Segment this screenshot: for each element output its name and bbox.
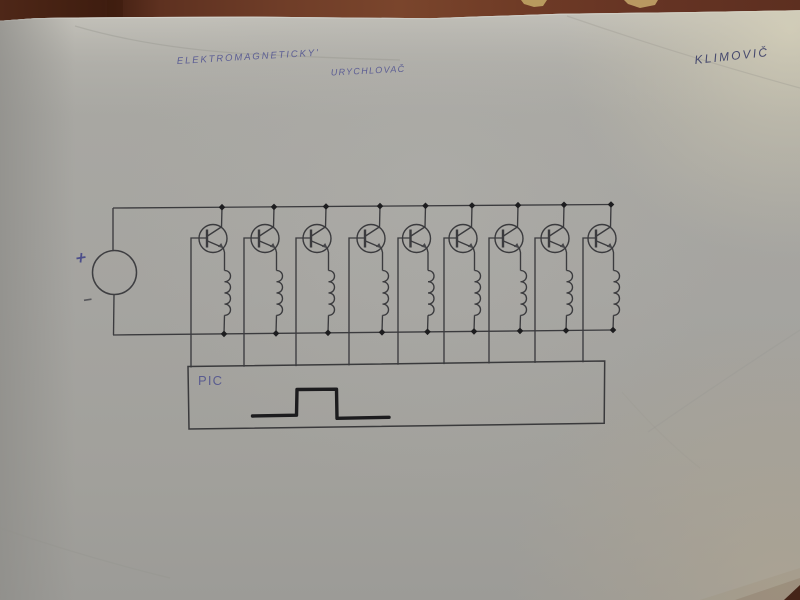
svg-text:PIC: PIC <box>198 373 223 388</box>
